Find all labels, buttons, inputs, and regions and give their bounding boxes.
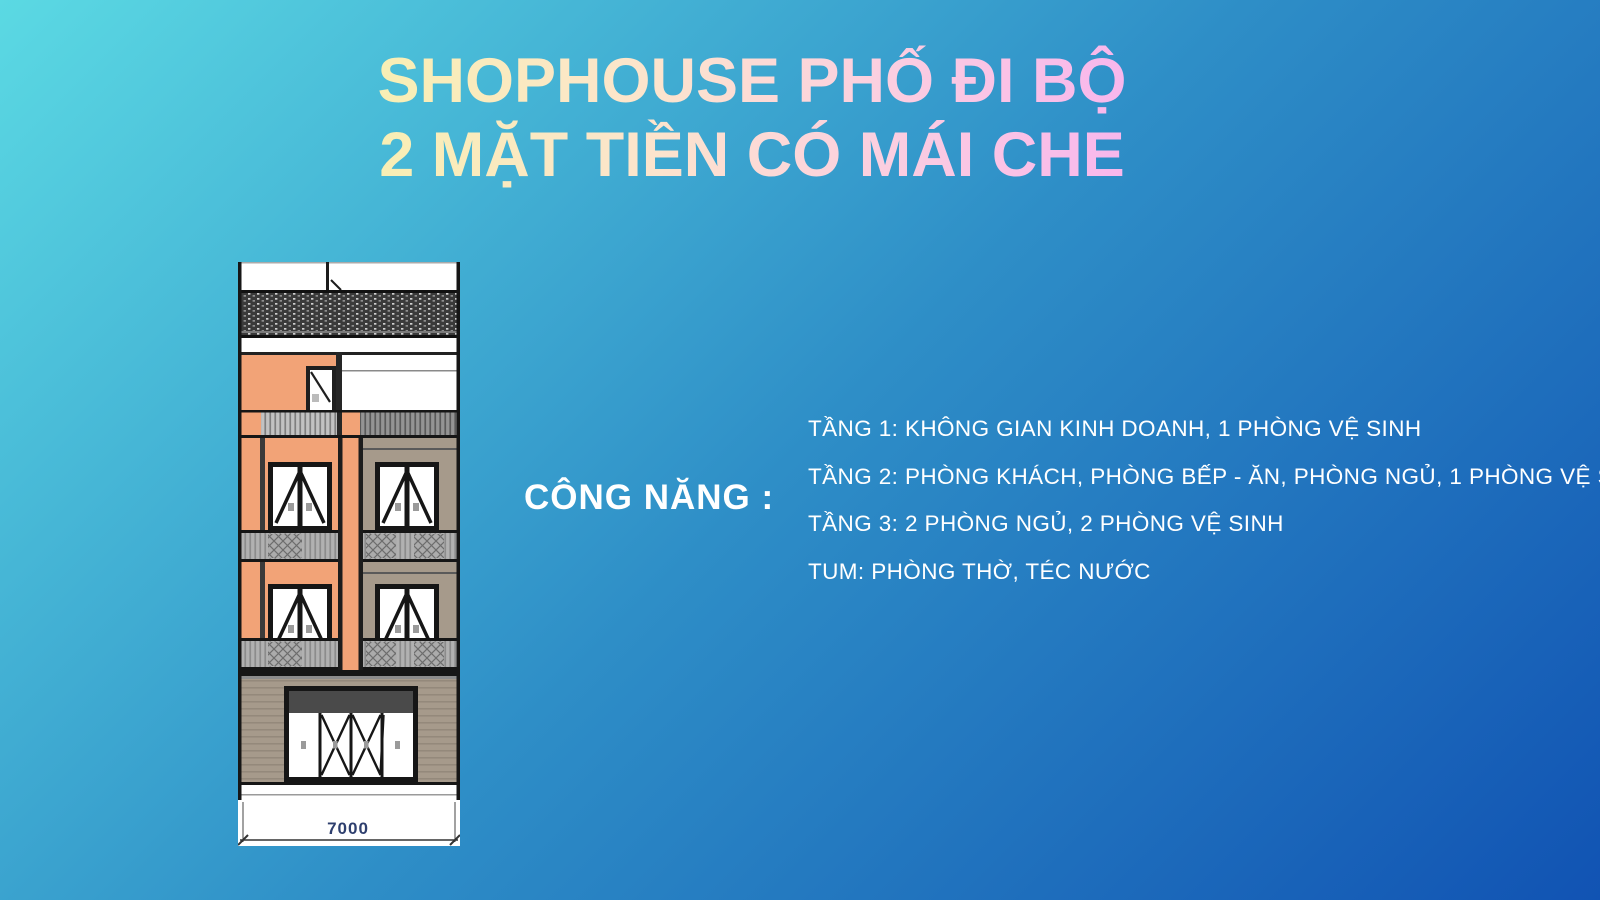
slide-background: SHOPHOUSE PHỐ ĐI BỘ 2 MẶT TIỀN CÓ MÁI CH…: [0, 0, 1600, 900]
dimension-label: 7000: [327, 819, 369, 838]
tum-railing-band: [241, 410, 457, 438]
floor-1-description: TẦNG 1: KHÔNG GIAN KINH DOANH, 1 PHÒNG V…: [808, 405, 1600, 453]
floor-3-description: TẦNG 3: 2 PHÒNG NGỦ, 2 PHÒNG VỆ SINH: [808, 500, 1600, 548]
functions-list: TẦNG 1: KHÔNG GIAN KINH DOANH, 1 PHÒNG V…: [808, 405, 1600, 596]
ground-floor: [241, 679, 457, 782]
slide-title: SHOPHOUSE PHỐ ĐI BỘ 2 MẶT TIỀN CÓ MÁI CH…: [352, 44, 1152, 192]
left-frame-line: [238, 262, 242, 800]
title-line-1: SHOPHOUSE PHỐ ĐI BỘ: [352, 44, 1152, 118]
building-elevation-drawing: 7000: [238, 262, 460, 846]
title-line-2: 2 MẶT TIỀN CÓ MÁI CHE: [352, 118, 1152, 192]
right-frame-line: [457, 262, 461, 800]
tum-door: [306, 366, 336, 410]
functions-label: CÔNG NĂNG :: [524, 472, 774, 524]
roof-band: [241, 290, 457, 338]
center-column: [338, 438, 363, 670]
floor-3-window-left: [268, 462, 332, 530]
storefront: [284, 686, 418, 782]
floor-2-description: TẦNG 2: PHÒNG KHÁCH, PHÒNG BẾP - ĂN, PHÒ…: [808, 453, 1600, 501]
base-band: [241, 782, 457, 800]
floor-divider: [241, 670, 457, 676]
floor-3-window-right: [375, 462, 439, 530]
tum-description: TUM: PHÒNG THỜ, TÉC NƯỚC: [808, 548, 1600, 596]
